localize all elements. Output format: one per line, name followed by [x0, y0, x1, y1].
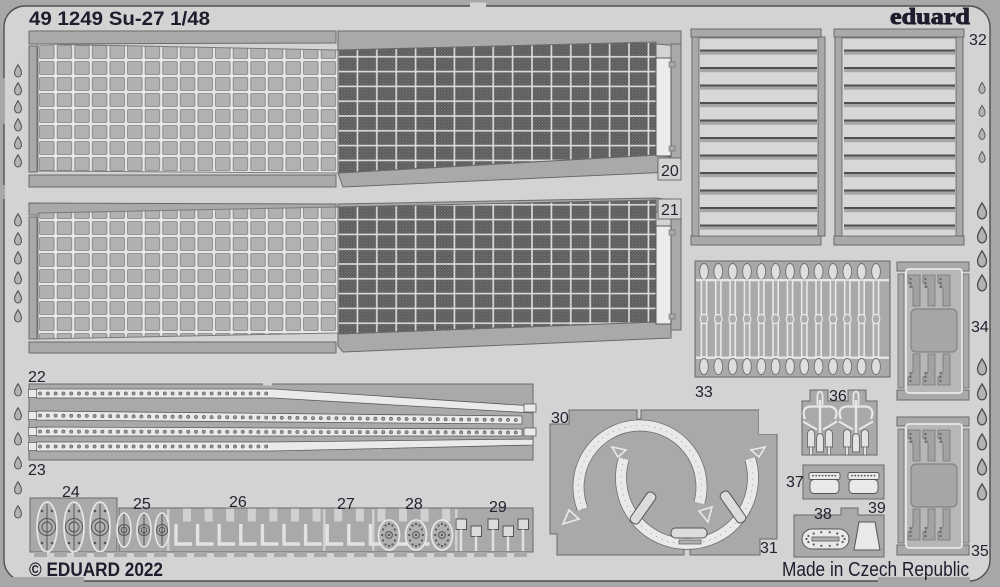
- svg-text:21: 21: [661, 202, 679, 219]
- svg-text:Made in Czech Republic: Made in Czech Republic: [782, 559, 969, 581]
- svg-text:20: 20: [661, 163, 679, 180]
- svg-text:25: 25: [133, 496, 151, 513]
- svg-text:35: 35: [971, 543, 989, 560]
- svg-text:© EDUARD 2022: © EDUARD 2022: [29, 560, 163, 581]
- svg-text:39: 39: [868, 500, 886, 517]
- svg-text:eduard: eduard: [890, 4, 970, 29]
- svg-text:31: 31: [760, 540, 778, 557]
- svg-text:34: 34: [971, 319, 989, 336]
- svg-text:49 1249 Su-27 1/48: 49 1249 Su-27 1/48: [29, 8, 210, 30]
- svg-text:29: 29: [489, 499, 507, 516]
- svg-text:27: 27: [337, 496, 355, 513]
- svg-text:24: 24: [62, 484, 80, 501]
- svg-text:28: 28: [405, 496, 423, 513]
- svg-text:23: 23: [28, 462, 46, 479]
- svg-text:36: 36: [829, 388, 847, 405]
- svg-text:30: 30: [551, 410, 569, 427]
- svg-text:26: 26: [229, 494, 247, 511]
- svg-text:32: 32: [969, 32, 987, 49]
- svg-text:33: 33: [695, 384, 713, 401]
- svg-text:37: 37: [786, 474, 804, 491]
- svg-text:38: 38: [814, 506, 832, 523]
- svg-text:22: 22: [28, 369, 46, 386]
